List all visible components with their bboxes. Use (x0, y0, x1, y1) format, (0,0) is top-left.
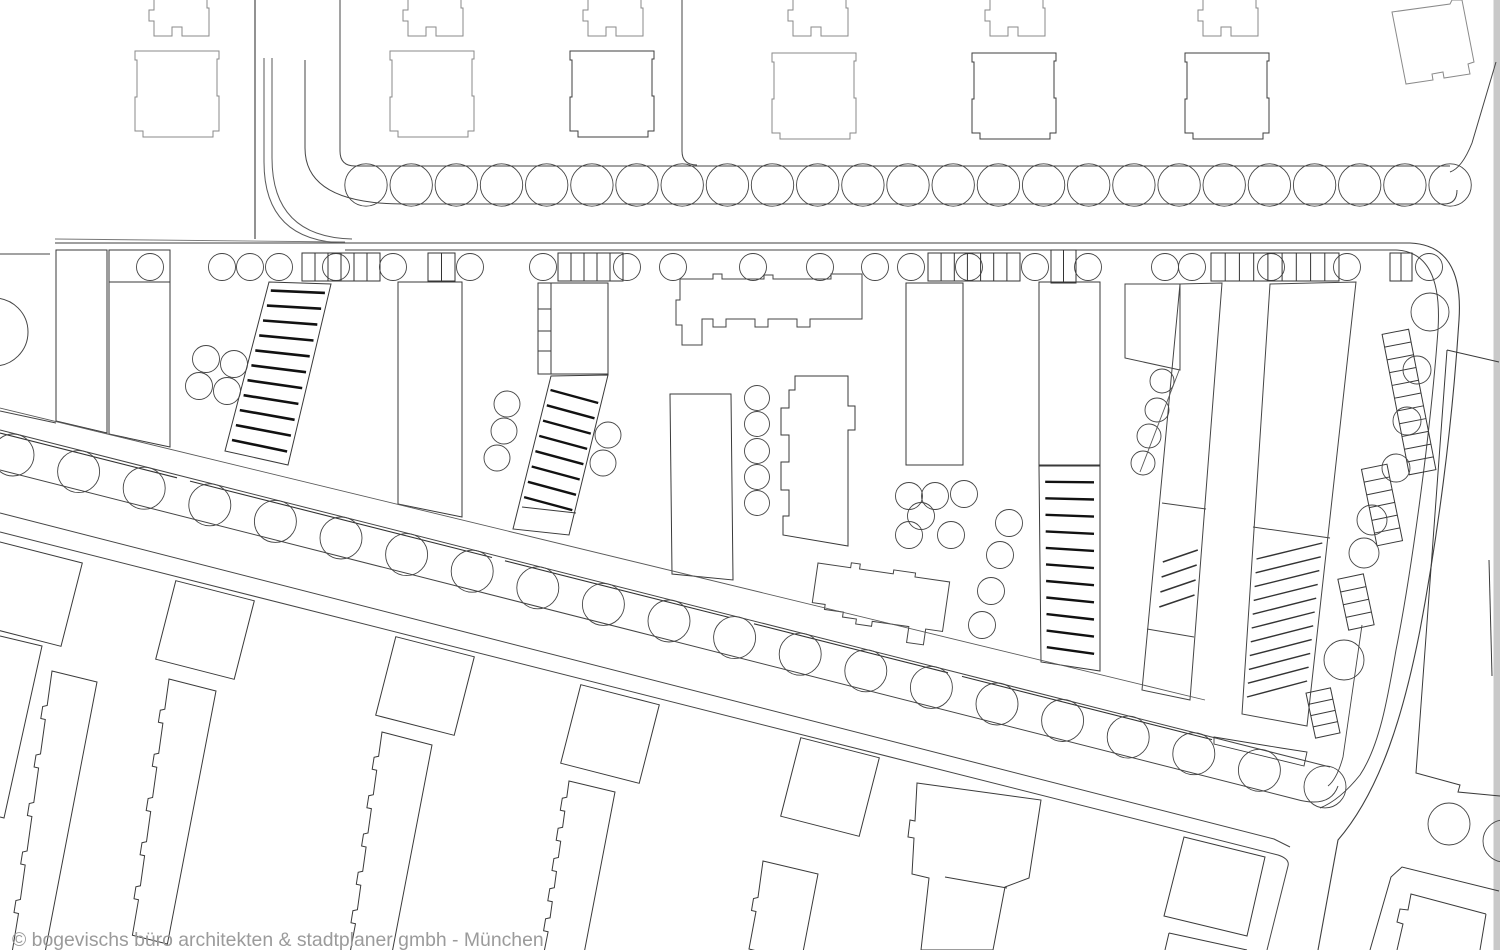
svg-text:© bogevischs büro architekten: © bogevischs büro architekten & stadtpla… (12, 929, 544, 950)
